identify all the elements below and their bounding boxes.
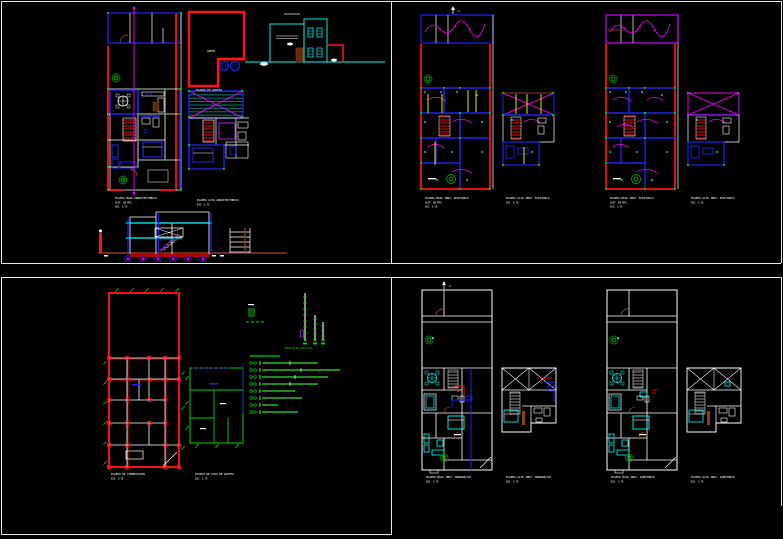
rebar-row bbox=[250, 375, 328, 379]
bush-icon bbox=[287, 43, 293, 46]
svg-text:ESC. 1:75: ESC. 1:75 bbox=[691, 201, 704, 205]
rebar-row bbox=[250, 361, 318, 365]
caption-electrical-pa1: PLANTA ALTA INST. ELECTRICA bbox=[506, 196, 550, 200]
window-icon bbox=[308, 28, 322, 57]
stair-rail bbox=[230, 228, 250, 253]
electrical-lighting-pair: A PLANTA BAJA INST. ELECTRICA ACOT. EN M… bbox=[420, 6, 554, 209]
caption-sanitary-pa2: PLANTA ALTA INST. SANITARIA bbox=[691, 475, 735, 479]
viewport-structural[interactable]: PLANTA DE CIMENTACION ESC. 1:75 PLANTA D… bbox=[2, 278, 390, 533]
caption-hydraulic-pb1: PLANTA BAJA INST. HIDRAULICA bbox=[426, 475, 471, 479]
svg-text:ACOT. EN MTS.: ACOT. EN MTS. bbox=[115, 201, 133, 205]
svg-text:ACOT. EN MTS.: ACOT. EN MTS. bbox=[610, 201, 628, 205]
frame-right-top bbox=[781, 1, 782, 263]
stair-stringer bbox=[160, 234, 178, 251]
svg-text:ESC. 1:75: ESC. 1:75 bbox=[425, 205, 438, 209]
svg-text:ESC. 1:75: ESC. 1:75 bbox=[610, 205, 623, 209]
viewport-architectural[interactable]: PLANTA BAJA ARQUITECTONICA ACOT. EN MTS.… bbox=[2, 2, 390, 262]
caption-slab: PLANTA DE LOSA DE AZOTEA bbox=[195, 472, 234, 476]
rebar-row bbox=[250, 389, 295, 393]
roof-area-label: AZOTEA bbox=[207, 49, 216, 53]
caption-electrical-pb2: PLANTA BAJA INST. ELECTRICA bbox=[610, 196, 654, 200]
stair-upper bbox=[203, 120, 214, 142]
rebar-detail-rows bbox=[243, 356, 340, 414]
roof-plan: AZOTEA PLANTA DE AZOTEA bbox=[189, 12, 244, 92]
sanitary-marks bbox=[640, 382, 730, 397]
frame-bottom-left bbox=[1, 534, 392, 535]
cad-canvas: PLANTA BAJA ARQUITECTONICA ACOT. EN MTS.… bbox=[0, 0, 783, 539]
svg-text:ESC. 1:75: ESC. 1:75 bbox=[611, 480, 624, 484]
caption-electrical-pa2: PLANTA ALTA INST. ELECTRICA bbox=[691, 196, 735, 200]
upper-floor-plan: PLANTA ALTA ARQUITECTONICA ESC. 1:75 bbox=[188, 90, 249, 207]
ground-floor-plan: PLANTA BAJA ARQUITECTONICA ACOT. EN MTS.… bbox=[107, 7, 182, 209]
caption-ground-floor: PLANTA BAJA ARQUITECTONICA bbox=[115, 196, 157, 200]
caption-foundation: PLANTA DE CIMENTACION bbox=[111, 472, 145, 476]
bush-icon bbox=[260, 62, 268, 65]
viewport-electrical[interactable]: A PLANTA BAJA INST. ELECTRICA ACOT. EN M… bbox=[392, 2, 780, 262]
caption-column-detail: DETALLE DE CASTILLOS bbox=[285, 346, 313, 350]
caption-roof-plan: PLANTA DE AZOTEA bbox=[196, 88, 222, 92]
frame-mid-h1 bbox=[1, 263, 781, 264]
legend-symbol bbox=[246, 304, 264, 322]
svg-text:A: A bbox=[458, 9, 460, 13]
north-arrow-icon bbox=[451, 6, 455, 14]
water-pipes bbox=[452, 368, 554, 470]
caption-sanitary-pb2: PLANTA BAJA INST. SANITARIA bbox=[611, 475, 655, 479]
svg-text:ESC. 1:75: ESC. 1:75 bbox=[506, 201, 519, 205]
electrical-outlets-pair: PLANTA BAJA INST. ELECTRICA ACOT. EN MTS… bbox=[605, 15, 739, 209]
longitudinal-section bbox=[98, 212, 287, 262]
front-elevation bbox=[245, 14, 385, 66]
plant-icon bbox=[112, 74, 120, 82]
sanitary-pair: PLANTA BAJA INST. SANITARIA ESC. 1:75 PL… bbox=[607, 290, 741, 484]
water-tank-icon bbox=[220, 62, 229, 71]
frame-right-bottom bbox=[781, 277, 782, 506]
rebar-row bbox=[250, 410, 298, 414]
svg-text:ESC. 1:75: ESC. 1:75 bbox=[197, 203, 210, 207]
north-arrow-icon bbox=[442, 281, 446, 289]
rebar-row bbox=[250, 368, 340, 372]
svg-text:ESC. 1:75: ESC. 1:75 bbox=[691, 480, 704, 484]
slab-plan: PLANTA DE LOSA DE AZOTEA ESC. 1:75 bbox=[185, 368, 243, 481]
water-tank-icon bbox=[231, 62, 240, 71]
caption-electrical-pb1: PLANTA BAJA INST. ELECTRICA bbox=[425, 196, 469, 200]
plant-icon bbox=[119, 176, 127, 184]
svg-text:ESC. 1:75: ESC. 1:75 bbox=[115, 205, 128, 209]
rebar-row bbox=[250, 382, 318, 386]
svg-text:ESC. 1:75: ESC. 1:75 bbox=[426, 480, 439, 484]
column-detail: DETALLE DE CASTILLOS bbox=[285, 293, 325, 350]
footing-icon bbox=[125, 256, 132, 262]
svg-text:ESC. 1:75: ESC. 1:75 bbox=[195, 477, 208, 481]
viewport-hydraulic[interactable]: A PLANTA BAJA INST. HIDRAULICA ESC. 1:75… bbox=[392, 278, 780, 539]
caption-upper-floor: PLANTA ALTA ARQUITECTONICA bbox=[197, 198, 239, 202]
bush-icon bbox=[331, 59, 337, 62]
hydraulic-pair: A PLANTA BAJA INST. HIDRAULICA ESC. 1:75… bbox=[422, 281, 556, 484]
svg-text:A: A bbox=[449, 284, 451, 288]
foundation-plan: PLANTA DE CIMENTACION ESC. 1:75 bbox=[103, 288, 184, 480]
rebar-row bbox=[250, 396, 302, 400]
rebar-row bbox=[250, 403, 278, 407]
door-icon bbox=[296, 48, 303, 62]
svg-text:ESC. 1:75: ESC. 1:75 bbox=[111, 477, 124, 481]
caption-hydraulic-pa1: PLANTA ALTA INST. HIDRAULICA bbox=[506, 475, 551, 479]
svg-text:ESC. 1:75: ESC. 1:75 bbox=[506, 480, 519, 484]
svg-text:ACOT. EN MTS.: ACOT. EN MTS. bbox=[425, 201, 443, 205]
